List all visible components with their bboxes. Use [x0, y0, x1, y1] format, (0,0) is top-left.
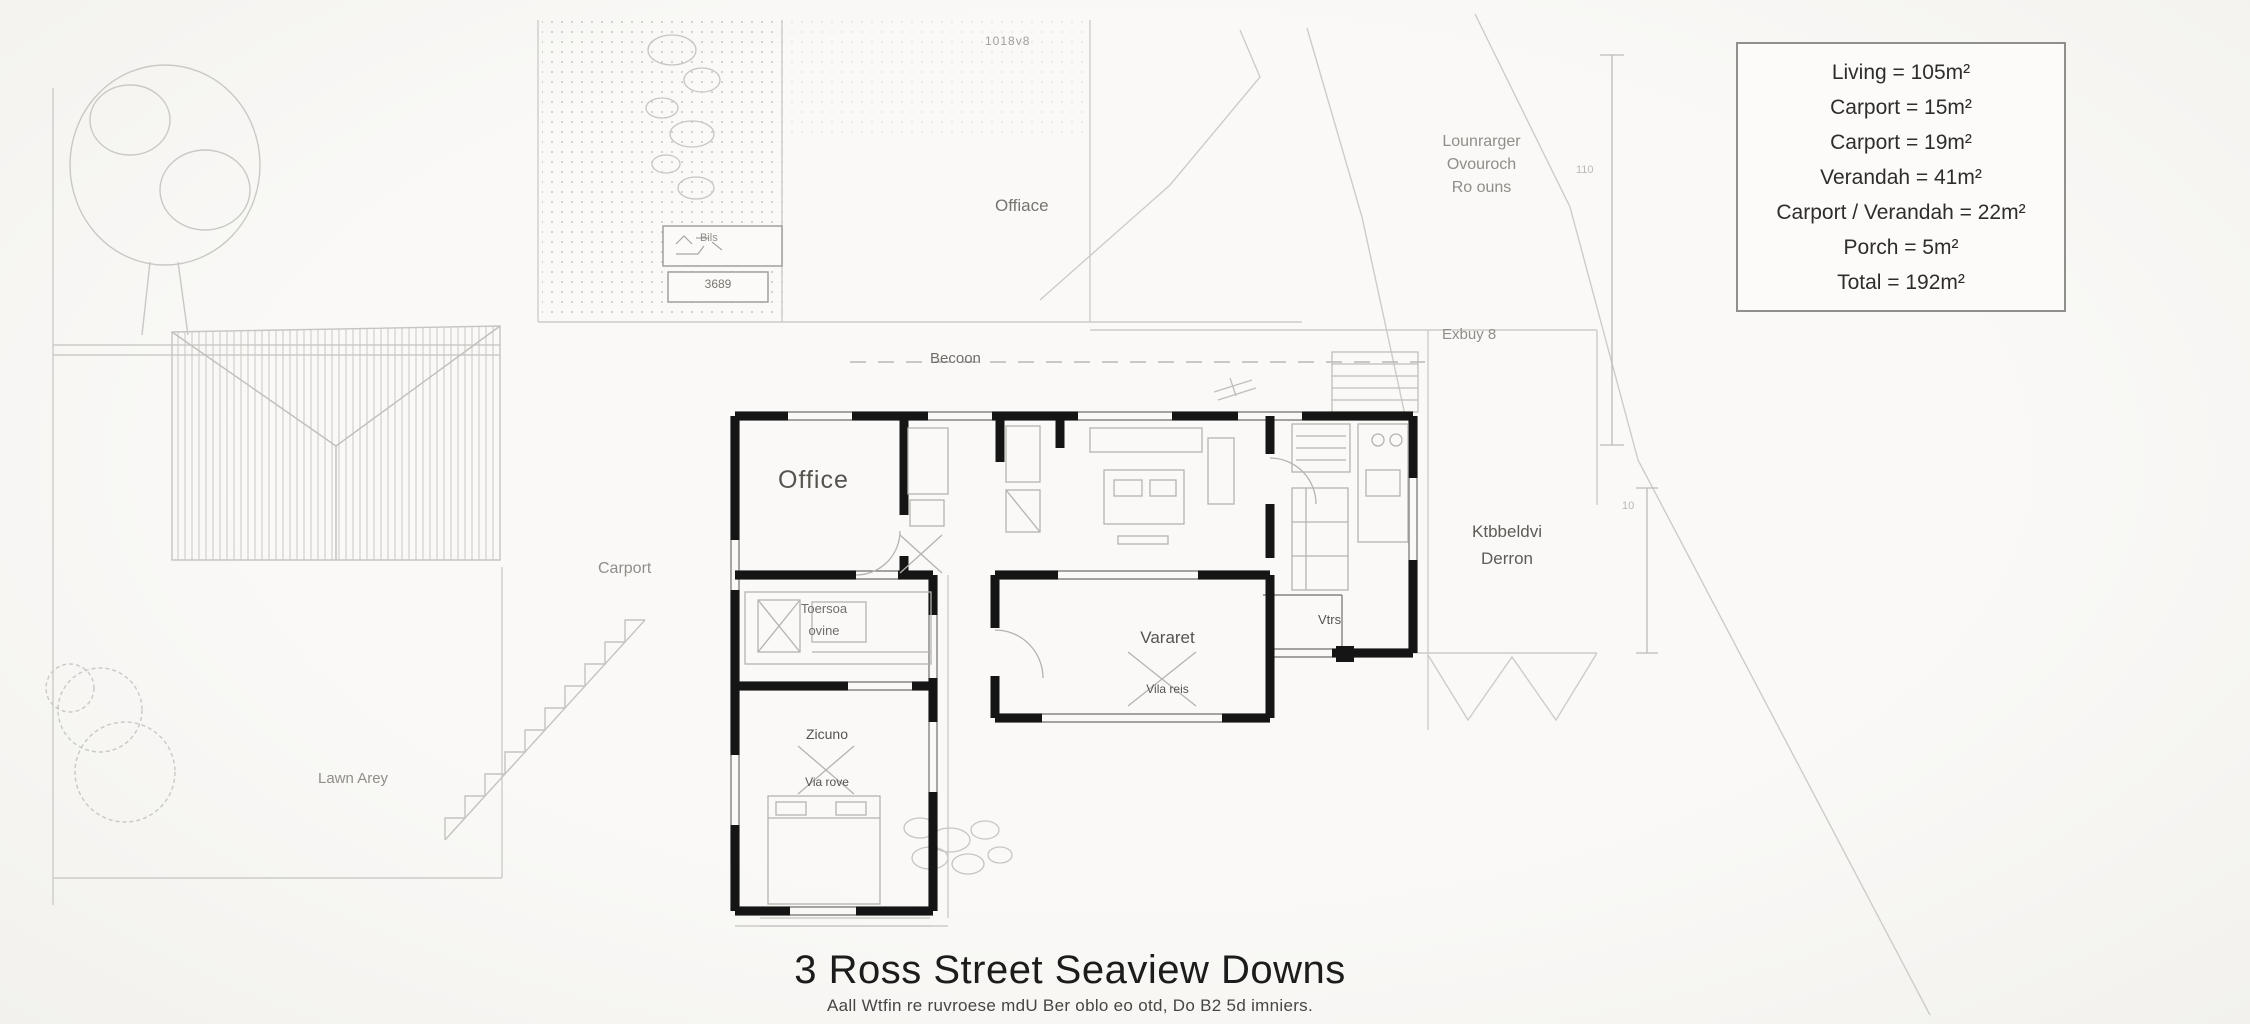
legend-line-carport1: Carport = 15m² [1738, 90, 2064, 125]
room-bedroom-line1: Zicuno [782, 726, 872, 742]
label-boundary-room: Becoon [930, 350, 981, 367]
label-lounge-line2: Ovouroch [1404, 153, 1559, 176]
room-laundry-line1: Toersoa [768, 598, 880, 620]
furniture [745, 424, 1408, 904]
room-laundry: Toersoa ovine [768, 598, 880, 642]
label-office-area: Offiace [995, 196, 1049, 216]
room-kitchen-dining: Ktbbeldvi Derron [1432, 518, 1582, 572]
label-gravel-note: 1018v8 [985, 34, 1030, 48]
sheet-disclaimer: Aall Wtfin re ruvroese mdU Ber oblo eo o… [570, 996, 1570, 1016]
label-shed-number: 3689 [668, 277, 768, 291]
legend-line-total: Total = 192m² [1738, 265, 2064, 300]
label-carport: Carport [598, 560, 651, 578]
sheet-title: 3 Ross Street Seaview Downs [570, 948, 1570, 993]
pebble-cluster-bottom [904, 818, 1012, 874]
room-laundry-line2: ovine [768, 620, 880, 642]
carport-roof [172, 326, 500, 560]
room-wir: Vtrs [1318, 612, 1341, 627]
deck-steps [1214, 352, 1418, 412]
label-shed: Bils [700, 232, 718, 244]
room-verandah-line1: Vararet [1100, 628, 1235, 648]
room-verandah-line2: Vila reis [1100, 682, 1235, 696]
garden-steps [445, 620, 645, 840]
legend-line-carport2: Carport = 19m² [1738, 125, 2064, 160]
label-lounge-rooms: Lounrarger Ovouroch Ro ouns [1404, 130, 1559, 199]
legend-line-verandah: Verandah = 41m² [1738, 160, 2064, 195]
label-existing: Exbuy 8 [1442, 326, 1496, 343]
floorplan-sheet: Living = 105m² Carport = 15m² Carport = … [0, 0, 2250, 1024]
label-lawn-area: Lawn Arey [318, 770, 388, 787]
legend-line-carport-verandah: Carport / Verandah = 22m² [1738, 195, 2064, 230]
wall-corner-block [1336, 646, 1354, 662]
room-kitchen-line1: Ktbbeldvi [1432, 518, 1582, 545]
room-kitchen-line2: Derron [1432, 545, 1582, 572]
label-lounge-line1: Lounrarger [1404, 130, 1559, 153]
tree-sketch [70, 65, 260, 335]
bush-sketch [46, 664, 175, 822]
legend-line-porch: Porch = 5m² [1738, 230, 2064, 265]
label-dimension-mid: 10 [1622, 500, 1634, 512]
label-dimension-top: 110 [1576, 164, 1594, 176]
area-legend: Living = 105m² Carport = 15m² Carport = … [1736, 42, 2066, 312]
label-lounge-line3: Ro ouns [1404, 176, 1559, 199]
legend-line-living: Living = 105m² [1738, 55, 2064, 90]
dimension-lines [1600, 55, 1658, 653]
room-bedroom-line2: Via rove [782, 775, 872, 789]
gravel-area-sparse [790, 20, 1090, 140]
room-office: Office [778, 466, 849, 495]
